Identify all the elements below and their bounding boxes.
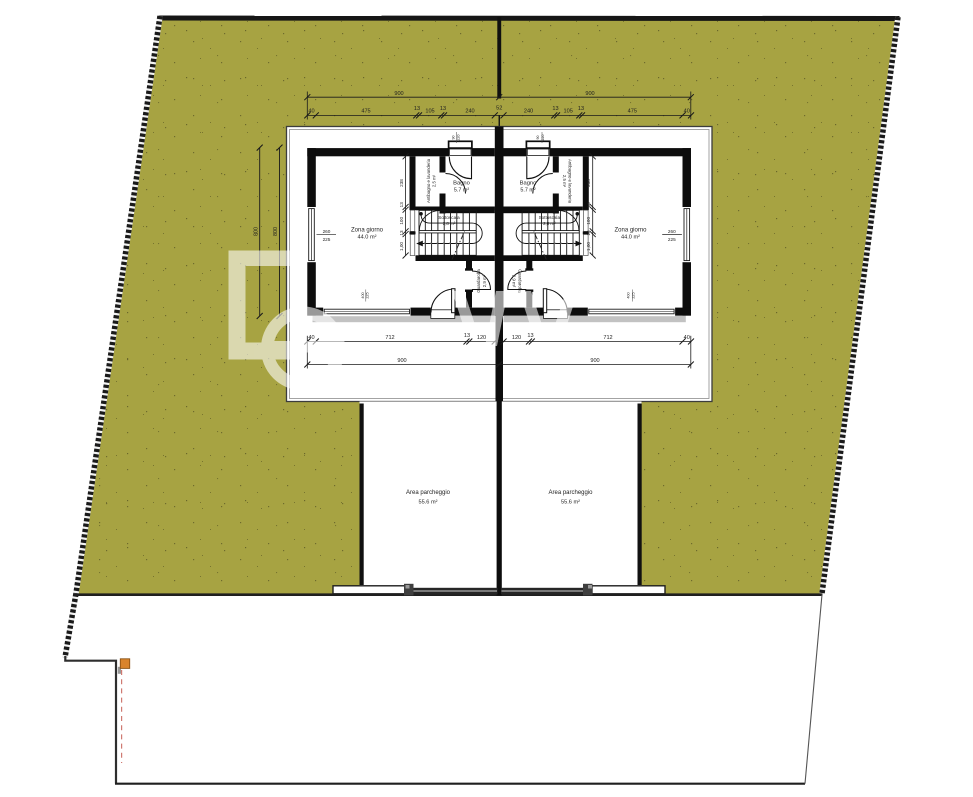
svg-text:712: 712 bbox=[385, 335, 394, 341]
svg-text:Zona giorno: Zona giorno bbox=[614, 228, 647, 234]
svg-text:40: 40 bbox=[684, 109, 690, 115]
svg-text:2,8 m²: 2,8 m² bbox=[443, 221, 456, 226]
svg-text:40: 40 bbox=[684, 335, 690, 341]
svg-text:105: 105 bbox=[425, 109, 434, 115]
svg-text:Bagno: Bagno bbox=[453, 181, 470, 187]
svg-text:Area parcheggio: Area parcheggio bbox=[406, 490, 451, 496]
svg-text:900: 900 bbox=[397, 358, 406, 364]
svg-text:Sottoscala: Sottoscala bbox=[438, 215, 460, 220]
svg-text:Antibagno e lavanderia: Antibagno e lavanderia bbox=[426, 158, 431, 203]
svg-text:712: 712 bbox=[603, 335, 612, 341]
svg-text:260: 260 bbox=[323, 229, 331, 234]
svg-text:13: 13 bbox=[527, 333, 533, 339]
svg-text:225: 225 bbox=[668, 237, 676, 242]
svg-text:400: 400 bbox=[627, 292, 631, 298]
svg-text:13: 13 bbox=[578, 106, 584, 112]
svg-text:40: 40 bbox=[308, 109, 314, 115]
svg-text:5.7 m²: 5.7 m² bbox=[454, 188, 469, 194]
svg-text:900: 900 bbox=[585, 91, 594, 97]
svg-text:55.6 m²: 55.6 m² bbox=[561, 500, 580, 506]
svg-text:220: 220 bbox=[456, 135, 460, 141]
svg-text:Bagno: Bagno bbox=[520, 181, 537, 187]
svg-text:52: 52 bbox=[496, 105, 502, 111]
svg-text:13: 13 bbox=[464, 333, 470, 339]
svg-text:Area parcheggio: Area parcheggio bbox=[548, 490, 593, 496]
svg-text:13: 13 bbox=[552, 106, 558, 112]
svg-text:1,00: 1,00 bbox=[586, 242, 591, 251]
svg-text:100: 100 bbox=[586, 217, 591, 225]
svg-text:Guardaroba: Guardaroba bbox=[476, 269, 481, 293]
svg-text:55.6 m²: 55.6 m² bbox=[419, 500, 438, 506]
svg-text:120: 120 bbox=[477, 335, 486, 341]
svg-text:13: 13 bbox=[399, 230, 404, 236]
svg-text:Sottoscala: Sottoscala bbox=[539, 215, 561, 220]
svg-text:44.0 m²: 44.0 m² bbox=[358, 235, 377, 241]
svg-text:2,5 m²: 2,5 m² bbox=[562, 175, 567, 188]
svg-text:2,5 m²: 2,5 m² bbox=[432, 174, 437, 187]
svg-text:475: 475 bbox=[361, 109, 370, 115]
svg-text:Guardaroba: Guardaroba bbox=[517, 269, 522, 293]
svg-text:475: 475 bbox=[628, 109, 637, 115]
svg-text:90: 90 bbox=[452, 136, 456, 140]
svg-text:225: 225 bbox=[366, 292, 370, 298]
svg-text:5.7 m²: 5.7 m² bbox=[520, 188, 535, 194]
svg-text:220: 220 bbox=[541, 135, 545, 141]
svg-text:13: 13 bbox=[440, 106, 446, 112]
svg-text:238: 238 bbox=[399, 179, 404, 187]
svg-text:1,00: 1,00 bbox=[399, 242, 404, 251]
svg-text:260: 260 bbox=[668, 229, 676, 234]
svg-text:13: 13 bbox=[414, 106, 420, 112]
svg-text:240: 240 bbox=[465, 109, 474, 115]
svg-text:13: 13 bbox=[399, 202, 404, 208]
svg-text:2,9 m²: 2,9 m² bbox=[482, 274, 487, 287]
svg-text:105: 105 bbox=[564, 109, 573, 115]
svg-text:225: 225 bbox=[323, 237, 331, 242]
svg-text:Antibagno e lavanderia: Antibagno e lavanderia bbox=[567, 159, 572, 204]
svg-text:90: 90 bbox=[536, 136, 540, 140]
svg-text:44.0 m²: 44.0 m² bbox=[621, 235, 640, 241]
svg-text:900: 900 bbox=[590, 358, 599, 364]
svg-text:800: 800 bbox=[273, 227, 279, 236]
svg-text:13: 13 bbox=[586, 230, 591, 236]
svg-text:2,8 m²: 2,8 m² bbox=[543, 221, 556, 226]
svg-text:225: 225 bbox=[631, 292, 635, 298]
svg-text:800: 800 bbox=[253, 227, 259, 236]
svg-text:40: 40 bbox=[308, 335, 314, 341]
svg-text:900: 900 bbox=[394, 91, 403, 97]
svg-text:2,9 m²: 2,9 m² bbox=[511, 275, 516, 288]
svg-text:238: 238 bbox=[586, 179, 591, 187]
svg-text:13: 13 bbox=[586, 202, 591, 208]
svg-text:Zona giorno: Zona giorno bbox=[351, 228, 384, 234]
svg-text:240: 240 bbox=[524, 109, 533, 115]
svg-text:100: 100 bbox=[399, 217, 404, 225]
svg-text:120: 120 bbox=[512, 335, 521, 341]
svg-text:400: 400 bbox=[361, 292, 365, 298]
